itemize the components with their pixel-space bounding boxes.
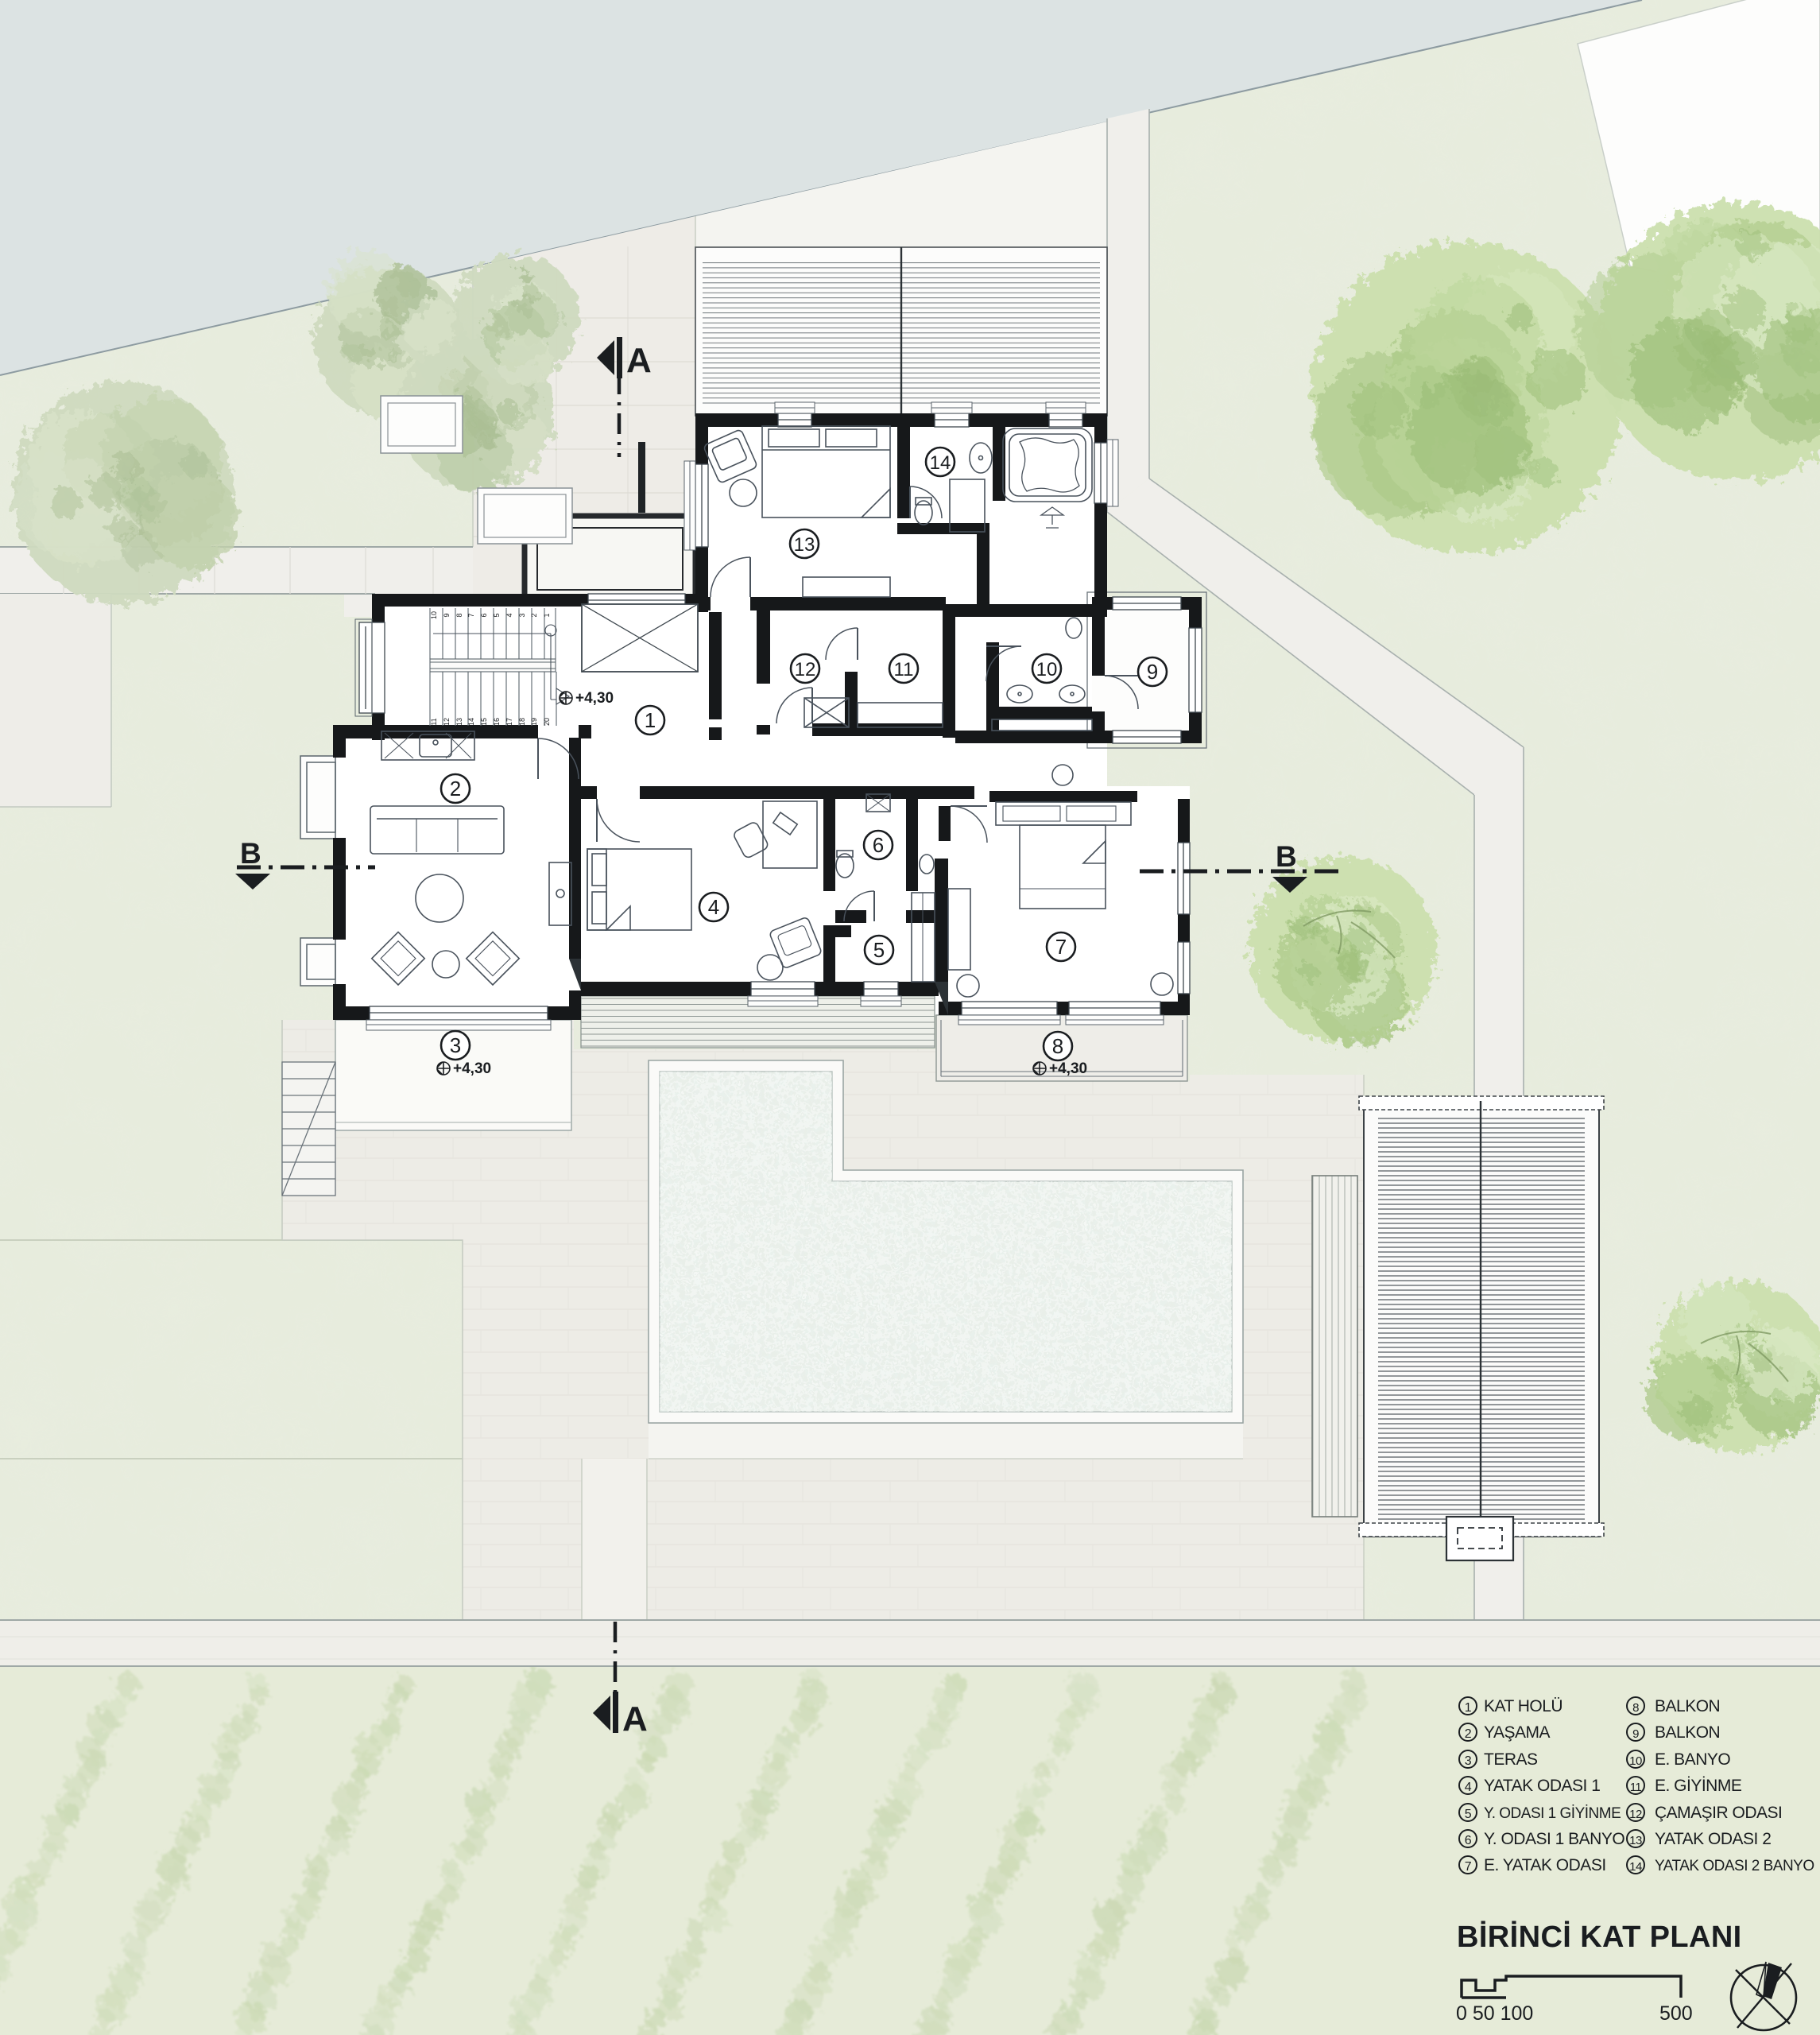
svg-text:11: 11: [894, 659, 914, 680]
svg-text:A: A: [626, 341, 652, 380]
svg-text:4: 4: [708, 895, 719, 919]
svg-text:14: 14: [1629, 1860, 1642, 1874]
svg-text:11: 11: [1630, 1781, 1642, 1794]
svg-text:12: 12: [1629, 1808, 1642, 1821]
svg-text:14: 14: [930, 452, 951, 474]
svg-text:6: 6: [873, 833, 884, 857]
svg-text:BALKON: BALKON: [1655, 1723, 1720, 1742]
svg-text:YATAK ODASI 2 BANYO: YATAK ODASI 2 BANYO: [1655, 1858, 1814, 1874]
svg-text:11: 11: [430, 718, 438, 725]
svg-text:17: 17: [505, 718, 513, 726]
svg-text:6: 6: [1465, 1834, 1472, 1847]
svg-text:B: B: [240, 837, 261, 870]
svg-text:E. YATAK ODASI: E. YATAK ODASI: [1484, 1856, 1606, 1874]
svg-text:1: 1: [645, 708, 656, 732]
svg-text:12: 12: [795, 659, 816, 680]
svg-text:5: 5: [493, 613, 501, 617]
svg-text:5: 5: [1465, 1808, 1472, 1821]
svg-text:8: 8: [1052, 1034, 1063, 1058]
svg-text:13: 13: [794, 534, 815, 556]
svg-text:TERAS: TERAS: [1484, 1750, 1538, 1769]
svg-text:YATAK ODASI 2: YATAK ODASI 2: [1655, 1830, 1771, 1848]
svg-text:6: 6: [480, 613, 488, 617]
svg-text:YAŞAMA: YAŞAMA: [1484, 1723, 1550, 1742]
svg-text:13: 13: [1629, 1834, 1642, 1847]
svg-text:4: 4: [1465, 1781, 1472, 1794]
svg-text:E. GİYİNME: E. GİYİNME: [1655, 1777, 1742, 1795]
svg-text:15: 15: [480, 718, 488, 726]
svg-text:20: 20: [543, 718, 551, 726]
svg-text:18: 18: [518, 718, 526, 726]
svg-text:BALKON: BALKON: [1655, 1697, 1720, 1715]
svg-text:12: 12: [443, 718, 451, 726]
svg-text:14: 14: [467, 718, 475, 726]
svg-text:BİRİNCİ KAT PLANI: BİRİNCİ KAT PLANI: [1457, 1921, 1742, 1954]
svg-text:Y. ODASI 1 BANYO: Y. ODASI 1 BANYO: [1484, 1830, 1624, 1848]
svg-text:A: A: [622, 1700, 648, 1738]
svg-text:16: 16: [493, 718, 501, 726]
svg-text:2: 2: [450, 777, 461, 800]
svg-text:2: 2: [1465, 1727, 1472, 1741]
svg-text:YATAK ODASI 1: YATAK ODASI 1: [1484, 1777, 1600, 1795]
svg-text:10: 10: [430, 611, 438, 619]
svg-text:E. BANYO: E. BANYO: [1655, 1750, 1730, 1769]
svg-text:+4,30: +4,30: [453, 1060, 491, 1077]
svg-text:3: 3: [518, 613, 526, 617]
svg-text:9: 9: [1147, 660, 1158, 684]
svg-text:19: 19: [530, 718, 538, 726]
svg-text:3: 3: [450, 1033, 461, 1057]
svg-text:8: 8: [455, 613, 463, 617]
svg-text:7: 7: [1465, 1860, 1472, 1874]
svg-text:7: 7: [1055, 935, 1067, 959]
svg-text:7: 7: [467, 613, 475, 617]
svg-text:1: 1: [543, 613, 551, 617]
svg-text:0 50 100: 0 50 100: [1456, 2002, 1533, 2025]
svg-text:8: 8: [1632, 1701, 1639, 1715]
svg-text:Y. ODASI 1 GİYİNME: Y. ODASI 1 GİYİNME: [1484, 1805, 1621, 1822]
svg-text:9: 9: [443, 613, 451, 617]
svg-text:10: 10: [1629, 1754, 1642, 1768]
svg-text:5: 5: [873, 938, 885, 962]
svg-text:9: 9: [1632, 1727, 1639, 1741]
svg-text:2: 2: [530, 613, 538, 617]
svg-text:B: B: [1276, 840, 1297, 873]
svg-text:10: 10: [1036, 659, 1058, 680]
svg-text:ÇAMAŞIR ODASI: ÇAMAŞIR ODASI: [1655, 1804, 1782, 1822]
svg-text:3: 3: [1465, 1754, 1472, 1768]
svg-text:4: 4: [505, 613, 513, 617]
svg-text:13: 13: [455, 718, 463, 726]
svg-text:KAT HOLÜ: KAT HOLÜ: [1484, 1697, 1562, 1715]
svg-text:500: 500: [1659, 2002, 1693, 2025]
svg-text:+4,30: +4,30: [1049, 1060, 1087, 1077]
svg-text:+4,30: +4,30: [575, 690, 614, 707]
svg-text:1: 1: [1465, 1701, 1472, 1715]
